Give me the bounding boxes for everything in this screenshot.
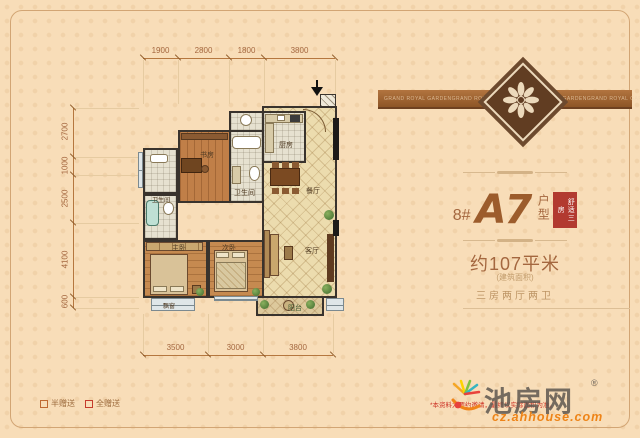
dining-table <box>270 168 300 186</box>
logo-url[interactable]: cz.ahhouse.com <box>492 410 603 424</box>
checkbox-icon[interactable] <box>40 400 48 408</box>
dim-top-2: 2800 <box>178 46 229 55</box>
extension-line <box>143 60 144 104</box>
study-label: 书房 <box>200 150 214 160</box>
dining-chair <box>282 188 289 194</box>
dim-bottom-2: 3000 <box>208 343 263 352</box>
study-shelf <box>181 133 228 140</box>
divider-top <box>463 170 567 175</box>
dim-left-1: 2700 <box>61 117 70 147</box>
dining-chair <box>272 188 279 194</box>
extension-line <box>75 175 139 176</box>
extension-line <box>333 314 334 353</box>
dim-line-top <box>143 58 335 59</box>
extension-line <box>264 60 265 104</box>
master-label: 主卧 <box>172 243 186 253</box>
unit-badge: 舒适三房 <box>553 192 577 228</box>
ribbon-text: GRAND ROYAL GARDEN <box>384 96 452 102</box>
study-desk <box>181 158 202 173</box>
dim-top-3: 1800 <box>229 46 264 55</box>
dim-left-2: 1000 <box>61 151 70 181</box>
unit-code: A7 <box>476 190 531 230</box>
entry-arrow-icon <box>311 87 323 96</box>
toilet <box>249 166 260 181</box>
dim-top-1: 1900 <box>143 46 178 55</box>
medallion-ornament <box>483 62 559 138</box>
wall-pier <box>333 220 339 236</box>
ribbon-text: GRAND ROYAL GARDEN <box>587 96 640 102</box>
checkbox-icon[interactable] <box>85 400 93 408</box>
study-chair <box>201 165 209 173</box>
kitchen-label: 厨房 <box>279 140 293 150</box>
gift-legend: 半赠送 全赠送 <box>40 398 120 409</box>
area-note: (建筑面积) <box>420 272 610 283</box>
pillow <box>153 286 167 292</box>
window-band <box>214 296 258 301</box>
kitchen-counter-side <box>265 123 274 153</box>
plant-icon <box>324 210 334 220</box>
plant-icon <box>322 284 332 294</box>
dim-top-4: 3800 <box>264 46 335 55</box>
sofa-seat <box>270 234 279 276</box>
legend-half-label: 半赠送 <box>51 398 75 409</box>
bathroom-center-label: 卫生间 <box>234 188 255 198</box>
thin-divider <box>463 308 630 309</box>
starburst-icon <box>448 378 482 414</box>
tv-cabinet <box>327 234 334 282</box>
bay-window-label: 飘窗 <box>163 301 175 310</box>
washbasin <box>150 154 168 163</box>
balcony-label: 阳台 <box>288 303 302 313</box>
dim-bottom-3: 3800 <box>263 343 333 352</box>
dim-line-bottom <box>143 355 333 356</box>
washing-machine <box>240 114 252 126</box>
quilt <box>216 262 246 289</box>
extension-line <box>75 297 139 298</box>
kitchen-stove <box>290 115 300 122</box>
registered-mark: ® <box>591 378 598 388</box>
dim-bottom-1: 3500 <box>143 343 208 352</box>
dim-left-3: 2500 <box>61 184 70 214</box>
bay-window-left <box>138 152 143 188</box>
legend-half-gift: 半赠送 <box>40 398 75 409</box>
divider-bottom <box>463 238 567 243</box>
dim-line-left <box>73 108 74 308</box>
second-label: 次卧 <box>222 243 236 253</box>
plant-icon <box>196 288 204 296</box>
vanity <box>232 166 241 184</box>
unit-title: 8# A7 户型 舒适三房 <box>420 186 610 234</box>
dining-label: 餐厅 <box>306 186 320 196</box>
wall-pier <box>333 118 339 160</box>
unit-type-label: 户型 <box>536 194 549 226</box>
dim-left-5: 600 <box>61 287 70 317</box>
dim-left-4: 4100 <box>61 245 70 275</box>
extension-line <box>178 60 179 104</box>
dining-chair <box>292 188 299 194</box>
extension-line <box>75 108 139 109</box>
bathroom-left-label: 卫生间 <box>152 195 170 204</box>
rooms-desc: 三房两厅两卫 <box>420 287 610 302</box>
plant-icon <box>306 300 315 309</box>
floorplan-poster: 1900 2800 1800 3800 2700 1000 2500 4100 … <box>0 0 640 438</box>
kitchen-sink <box>277 115 285 121</box>
plant-icon <box>260 300 269 309</box>
entry-arrow-stem <box>316 80 318 87</box>
unit-number: 8# <box>453 207 471 225</box>
flower-icon <box>501 80 541 120</box>
site-watermark[interactable]: 池房网 ® cz.ahhouse.com <box>448 378 633 420</box>
legend-full-label: 全赠送 <box>96 398 120 409</box>
plant-icon <box>252 288 260 296</box>
extension-line <box>75 223 139 224</box>
pillow <box>170 286 184 292</box>
coffee-table <box>284 246 293 260</box>
extension-line <box>229 60 230 104</box>
extension-line <box>75 157 139 158</box>
window-seat <box>326 298 344 311</box>
legend-full-gift: 全赠送 <box>85 398 120 409</box>
bathtub <box>232 136 261 149</box>
extension-line <box>75 308 139 309</box>
living-label: 客厅 <box>305 246 319 256</box>
